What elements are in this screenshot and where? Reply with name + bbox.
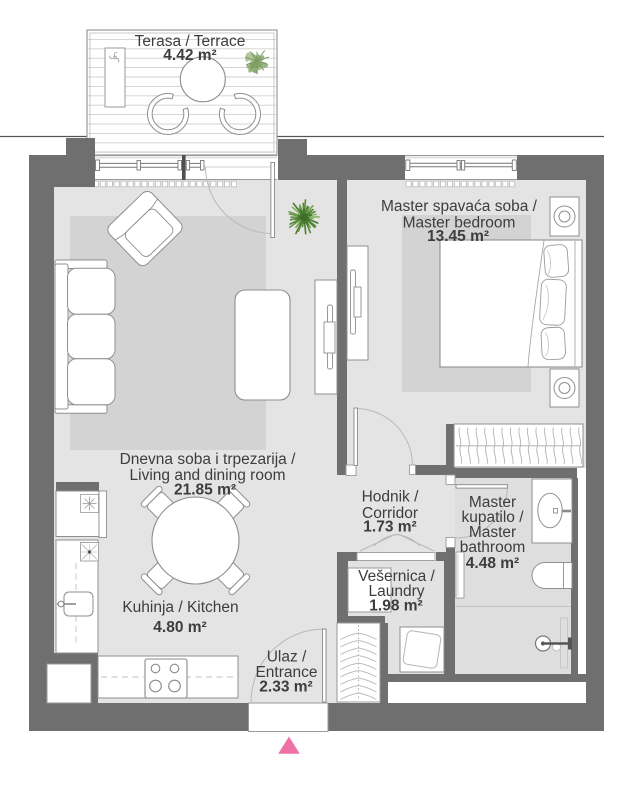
svg-text:13.45 m²: 13.45 m² bbox=[427, 228, 489, 245]
svg-text:4.80 m²: 4.80 m² bbox=[153, 619, 206, 636]
svg-text:1.98 m²: 1.98 m² bbox=[369, 598, 422, 615]
svg-text:2.33 m²: 2.33 m² bbox=[259, 679, 312, 696]
svg-text:Ulaz /: Ulaz / bbox=[267, 649, 307, 666]
svg-text:4.48 m²: 4.48 m² bbox=[466, 555, 519, 572]
svg-text:21.85 m²: 21.85 m² bbox=[174, 482, 236, 499]
svg-text:Hodnik /: Hodnik / bbox=[362, 489, 420, 506]
svg-text:4.42 m²: 4.42 m² bbox=[163, 47, 216, 64]
svg-text:Master spavaća soba /: Master spavaća soba / bbox=[381, 198, 538, 215]
svg-text:Dnevna soba i trpezarija /: Dnevna soba i trpezarija / bbox=[120, 451, 296, 468]
svg-text:Kuhinja / Kitchen: Kuhinja / Kitchen bbox=[122, 599, 238, 616]
svg-text:bathroom: bathroom bbox=[460, 539, 525, 556]
svg-text:1.73 m²: 1.73 m² bbox=[363, 519, 416, 536]
